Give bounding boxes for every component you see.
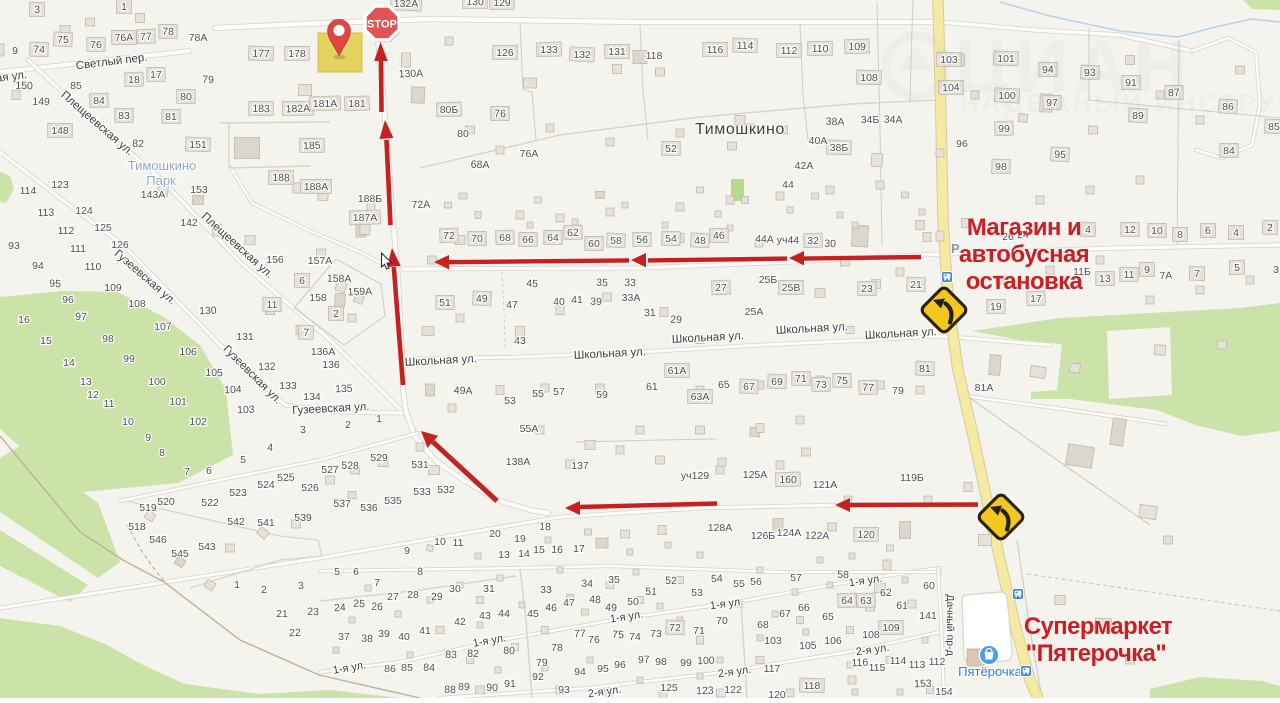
svg-text:76: 76 <box>90 39 102 51</box>
svg-text:3: 3 <box>298 580 304 592</box>
svg-text:21: 21 <box>276 608 288 620</box>
svg-text:524: 524 <box>257 479 275 491</box>
svg-text:80Б: 80Б <box>440 104 459 116</box>
svg-text:76А: 76А <box>114 32 133 45</box>
svg-text:102: 102 <box>189 416 207 429</box>
svg-text:77: 77 <box>140 31 152 43</box>
svg-text:527: 527 <box>321 464 339 476</box>
svg-text:2: 2 <box>261 584 267 596</box>
svg-text:535: 535 <box>384 495 402 507</box>
svg-text:533: 533 <box>413 486 431 498</box>
svg-text:71: 71 <box>693 625 705 637</box>
svg-text:111: 111 <box>70 243 86 255</box>
svg-text:53: 53 <box>691 587 703 599</box>
svg-text:67: 67 <box>743 381 755 393</box>
svg-text:35: 35 <box>608 574 620 586</box>
svg-text:72А: 72А <box>411 199 430 212</box>
svg-text:16: 16 <box>551 544 563 556</box>
svg-text:130А: 130А <box>398 68 423 81</box>
svg-text:131: 131 <box>236 331 254 343</box>
svg-text:108: 108 <box>862 629 880 641</box>
svg-text:115: 115 <box>869 662 886 674</box>
svg-text:85: 85 <box>70 80 82 92</box>
svg-text:119Б: 119Б <box>900 472 924 484</box>
svg-text:526: 526 <box>301 482 319 494</box>
svg-text:33А: 33А <box>622 292 641 304</box>
svg-text:8: 8 <box>1177 229 1183 241</box>
svg-text:92: 92 <box>532 671 544 683</box>
svg-text:124: 124 <box>75 205 93 217</box>
svg-text:42А: 42А <box>795 160 814 172</box>
svg-text:9: 9 <box>12 45 18 57</box>
svg-text:77: 77 <box>574 628 586 640</box>
svg-text:78А: 78А <box>189 32 208 44</box>
svg-text:110: 110 <box>812 43 829 56</box>
svg-text:Тимошкино: Тимошкино <box>128 158 197 173</box>
svg-text:129: 129 <box>493 0 511 9</box>
svg-text:181: 181 <box>348 98 366 110</box>
svg-text:131: 131 <box>608 46 626 58</box>
svg-text:20: 20 <box>489 528 501 540</box>
svg-text:5: 5 <box>334 566 340 578</box>
svg-text:85: 85 <box>1268 121 1280 133</box>
svg-text:STOP: STOP <box>367 19 397 31</box>
svg-text:40А: 40А <box>809 135 828 147</box>
svg-text:103: 103 <box>764 635 782 647</box>
svg-text:113: 113 <box>37 207 54 220</box>
svg-text:137: 137 <box>571 460 589 472</box>
svg-text:128А: 128А <box>708 522 733 534</box>
svg-text:2: 2 <box>345 419 351 431</box>
svg-text:51: 51 <box>439 297 451 309</box>
svg-text:54: 54 <box>711 573 723 585</box>
svg-text:55: 55 <box>532 388 544 400</box>
svg-text:151: 151 <box>189 139 207 151</box>
svg-text:42: 42 <box>454 616 466 628</box>
svg-text:5: 5 <box>1234 262 1240 274</box>
svg-text:97: 97 <box>75 311 87 323</box>
svg-text:71: 71 <box>795 373 807 385</box>
svg-text:11: 11 <box>267 299 278 311</box>
svg-text:116: 116 <box>851 657 868 670</box>
svg-text:76: 76 <box>588 634 600 646</box>
svg-text:61: 61 <box>646 381 658 393</box>
svg-text:23: 23 <box>307 606 319 618</box>
svg-text:85: 85 <box>401 662 413 674</box>
svg-text:154: 154 <box>935 686 953 698</box>
svg-text:78: 78 <box>551 642 563 654</box>
svg-text:74: 74 <box>33 44 45 56</box>
svg-text:1: 1 <box>376 413 382 425</box>
svg-text:135: 135 <box>335 383 353 396</box>
svg-text:141: 141 <box>919 610 937 622</box>
svg-text:57: 57 <box>790 572 802 584</box>
svg-text:108: 108 <box>860 72 878 84</box>
svg-text:12: 12 <box>87 389 99 401</box>
svg-text:14: 14 <box>518 548 530 560</box>
svg-text:6: 6 <box>353 566 359 578</box>
svg-text:63А: 63А <box>691 391 710 403</box>
svg-text:79: 79 <box>892 385 904 397</box>
svg-text:9: 9 <box>1144 264 1150 276</box>
svg-text:70: 70 <box>716 615 728 627</box>
svg-text:83: 83 <box>118 110 130 122</box>
svg-text:70: 70 <box>471 233 483 245</box>
svg-text:15: 15 <box>40 335 52 347</box>
svg-text:52: 52 <box>665 143 677 155</box>
svg-text:1: 1 <box>121 1 127 13</box>
svg-text:21: 21 <box>910 279 922 291</box>
svg-text:29: 29 <box>670 314 682 326</box>
svg-text:5: 5 <box>240 454 246 466</box>
svg-text:160: 160 <box>779 474 797 487</box>
svg-text:Пятёрочка: Пятёрочка <box>958 664 1022 679</box>
svg-text:4: 4 <box>1085 224 1091 236</box>
svg-text:95: 95 <box>597 663 609 675</box>
svg-text:73: 73 <box>815 379 827 391</box>
svg-text:64: 64 <box>841 595 853 607</box>
svg-text:10: 10 <box>1151 225 1163 237</box>
svg-text:17: 17 <box>573 543 585 555</box>
svg-text:19: 19 <box>990 301 1002 313</box>
svg-text:125: 125 <box>94 222 112 234</box>
svg-text:Супермаркет: Супермаркет <box>1024 613 1172 640</box>
svg-text:56: 56 <box>750 576 762 588</box>
svg-text:519: 519 <box>139 502 157 514</box>
svg-text:122А: 122А <box>805 530 830 543</box>
svg-text:25: 25 <box>353 598 365 610</box>
svg-text:123: 123 <box>696 685 714 698</box>
svg-text:38: 38 <box>361 633 373 645</box>
svg-text:53: 53 <box>504 395 516 407</box>
svg-text:34: 34 <box>581 578 593 590</box>
svg-text:44: 44 <box>782 179 794 191</box>
svg-text:23: 23 <box>861 283 873 295</box>
svg-text:158: 158 <box>309 292 327 304</box>
svg-text:66: 66 <box>798 602 810 614</box>
svg-text:68: 68 <box>757 619 769 631</box>
svg-text:522: 522 <box>201 497 219 509</box>
svg-text:19: 19 <box>514 533 526 545</box>
svg-text:525: 525 <box>277 472 295 485</box>
svg-text:142: 142 <box>180 217 198 229</box>
svg-text:34А: 34А <box>884 114 903 127</box>
svg-text:2: 2 <box>333 308 339 320</box>
svg-text:105: 105 <box>799 640 817 653</box>
svg-text:60: 60 <box>923 580 935 592</box>
svg-text:39: 39 <box>590 296 602 308</box>
svg-text:117: 117 <box>764 663 781 675</box>
svg-text:75: 75 <box>836 375 848 387</box>
svg-text:188: 188 <box>272 172 290 185</box>
svg-text:518: 518 <box>128 521 146 533</box>
svg-text:38А: 38А <box>826 116 845 129</box>
svg-text:17: 17 <box>150 69 162 81</box>
svg-text:86: 86 <box>384 663 396 675</box>
svg-text:156: 156 <box>266 254 284 266</box>
svg-text:62: 62 <box>567 227 579 239</box>
svg-text:106: 106 <box>179 346 197 359</box>
svg-text:Тимошкино: Тимошкино <box>695 121 785 138</box>
svg-text:49: 49 <box>476 293 488 305</box>
svg-text:6: 6 <box>206 465 212 477</box>
svg-text:65: 65 <box>718 379 730 391</box>
svg-text:95: 95 <box>1054 149 1066 161</box>
svg-text:9: 9 <box>145 432 151 444</box>
svg-text:78: 78 <box>162 26 174 38</box>
svg-text:18: 18 <box>128 74 140 86</box>
svg-text:11: 11 <box>104 398 115 410</box>
svg-text:114: 114 <box>890 655 907 667</box>
svg-text:539: 539 <box>294 512 312 524</box>
svg-text:98: 98 <box>655 656 667 668</box>
svg-text:177: 177 <box>252 48 270 61</box>
svg-text:153: 153 <box>914 678 932 691</box>
svg-text:93: 93 <box>558 684 570 696</box>
svg-text:543: 543 <box>198 541 216 553</box>
svg-text:51: 51 <box>645 586 657 598</box>
svg-text:46: 46 <box>545 602 557 614</box>
svg-text:187А: 187А <box>353 212 378 224</box>
svg-text:31: 31 <box>644 307 656 319</box>
svg-text:110: 110 <box>85 261 102 273</box>
svg-text:35: 35 <box>596 277 608 289</box>
svg-text:6: 6 <box>299 275 305 287</box>
svg-text:536: 536 <box>360 502 378 514</box>
svg-text:74: 74 <box>629 631 641 643</box>
svg-text:14: 14 <box>63 357 75 369</box>
svg-text:122: 122 <box>724 684 742 696</box>
svg-text:125: 125 <box>660 682 678 694</box>
svg-text:43: 43 <box>479 610 491 622</box>
svg-text:153: 153 <box>190 184 208 196</box>
svg-text:90: 90 <box>486 682 498 694</box>
svg-text:541: 541 <box>257 517 275 529</box>
svg-text:68А: 68А <box>471 159 490 172</box>
svg-text:94: 94 <box>32 260 44 272</box>
svg-text:12: 12 <box>1124 224 1136 236</box>
svg-text:8: 8 <box>159 447 165 459</box>
svg-text:3: 3 <box>34 4 40 16</box>
svg-text:123: 123 <box>51 179 69 191</box>
svg-text:25Б: 25Б <box>759 274 778 286</box>
svg-text:159А: 159А <box>347 286 372 299</box>
svg-text:60: 60 <box>588 238 600 250</box>
svg-text:49А: 49А <box>454 385 473 398</box>
svg-text:25А: 25А <box>745 306 764 318</box>
svg-text:НАДЕЖНЫЙ ИНСТРУМЕНТ: НАДЕЖНЫЙ ИНСТРУМЕНТ <box>960 88 1280 118</box>
svg-text:80: 80 <box>180 91 192 103</box>
svg-text:52: 52 <box>665 575 677 587</box>
svg-text:64: 64 <box>547 232 559 244</box>
svg-text:132: 132 <box>258 361 276 374</box>
svg-text:16: 16 <box>18 314 30 326</box>
svg-text:Парк: Парк <box>146 173 176 188</box>
svg-text:136: 136 <box>322 359 340 371</box>
svg-text:10: 10 <box>122 416 134 428</box>
svg-text:188А: 188А <box>304 181 329 193</box>
svg-text:41: 41 <box>571 294 583 306</box>
svg-text:84: 84 <box>1223 145 1235 157</box>
svg-text:99: 99 <box>123 353 135 365</box>
svg-text:183: 183 <box>252 103 270 116</box>
svg-text:15: 15 <box>533 544 545 556</box>
svg-text:72: 72 <box>669 622 681 634</box>
svg-text:40: 40 <box>553 296 565 308</box>
svg-text:47: 47 <box>506 299 518 311</box>
svg-text:106: 106 <box>824 635 842 647</box>
svg-text:48: 48 <box>694 235 706 247</box>
svg-text:8: 8 <box>417 566 423 578</box>
svg-text:81: 81 <box>165 111 177 123</box>
svg-text:101: 101 <box>169 396 187 409</box>
svg-text:108: 108 <box>128 298 146 310</box>
svg-text:100: 100 <box>148 376 166 388</box>
svg-text:45: 45 <box>526 278 538 290</box>
svg-text:88: 88 <box>444 684 456 696</box>
svg-text:130: 130 <box>466 0 484 8</box>
svg-text:26: 26 <box>371 601 383 613</box>
svg-text:84: 84 <box>423 662 435 674</box>
svg-text:182А: 182А <box>285 103 310 116</box>
svg-text:44А уч44: 44А уч44 <box>755 233 800 247</box>
svg-text:24: 24 <box>334 602 346 614</box>
svg-text:94: 94 <box>574 666 586 678</box>
svg-text:54: 54 <box>665 233 677 245</box>
svg-text:48: 48 <box>589 594 601 606</box>
svg-text:93: 93 <box>8 240 20 252</box>
svg-text:157А: 157А <box>308 255 333 267</box>
svg-text:55: 55 <box>733 578 745 590</box>
svg-text:7А: 7А <box>1159 270 1172 282</box>
svg-text:3: 3 <box>1273 264 1279 276</box>
svg-text:545: 545 <box>171 548 189 560</box>
svg-text:98: 98 <box>102 333 114 345</box>
svg-text:79: 79 <box>202 74 214 86</box>
svg-text:520: 520 <box>157 496 175 508</box>
svg-text:134: 134 <box>303 391 321 403</box>
svg-text:11: 11 <box>1124 269 1135 281</box>
svg-text:531: 531 <box>411 459 429 471</box>
svg-text:63: 63 <box>860 595 872 607</box>
svg-text:126: 126 <box>496 47 514 59</box>
svg-text:542: 542 <box>227 516 245 528</box>
svg-text:546: 546 <box>149 534 167 546</box>
svg-text:62: 62 <box>880 587 892 599</box>
svg-text:27: 27 <box>715 282 727 294</box>
svg-text:44: 44 <box>498 608 510 620</box>
svg-text:100: 100 <box>697 655 715 668</box>
svg-text:2: 2 <box>1267 222 1273 234</box>
svg-text:133: 133 <box>540 44 558 56</box>
svg-text:10: 10 <box>434 536 446 548</box>
svg-text:112: 112 <box>58 225 75 237</box>
svg-text:124А: 124А <box>777 527 802 539</box>
svg-text:112: 112 <box>929 656 946 668</box>
svg-text:4: 4 <box>1233 227 1239 239</box>
svg-text:96: 96 <box>614 659 626 671</box>
svg-text:58: 58 <box>610 235 622 247</box>
svg-text:Магазин и: Магазин и <box>967 214 1081 241</box>
svg-text:13: 13 <box>80 376 92 388</box>
svg-text:132А: 132А <box>394 0 419 10</box>
svg-text:80: 80 <box>503 645 515 657</box>
svg-text:34Б: 34Б <box>861 114 880 126</box>
svg-text:149: 149 <box>32 96 50 109</box>
svg-text:120: 120 <box>768 689 786 698</box>
svg-text:39: 39 <box>378 628 390 640</box>
svg-text:30: 30 <box>824 238 836 250</box>
svg-text:77: 77 <box>862 382 874 394</box>
svg-text:80: 80 <box>457 128 469 140</box>
svg-text:7: 7 <box>374 577 380 589</box>
svg-text:96: 96 <box>956 138 968 150</box>
svg-text:56: 56 <box>636 234 648 246</box>
svg-text:остановка: остановка <box>966 268 1084 295</box>
svg-text:109: 109 <box>104 282 122 294</box>
svg-text:"Пятерочка": "Пятерочка" <box>1026 640 1166 667</box>
svg-text:72: 72 <box>443 230 455 242</box>
svg-text:автобусная: автобусная <box>959 241 1089 268</box>
svg-text:107: 107 <box>154 321 172 334</box>
svg-text:31: 31 <box>483 583 495 595</box>
svg-text:112: 112 <box>781 45 798 57</box>
svg-text:136А: 136А <box>311 346 336 358</box>
svg-text:75: 75 <box>612 629 624 641</box>
svg-text:81: 81 <box>919 363 931 375</box>
svg-text:27: 27 <box>387 591 399 603</box>
svg-text:13: 13 <box>1099 273 1111 285</box>
svg-text:98: 98 <box>995 161 1007 173</box>
svg-text:105: 105 <box>205 367 223 380</box>
svg-text:89: 89 <box>458 681 470 693</box>
svg-text:103: 103 <box>237 404 255 417</box>
svg-text:69: 69 <box>771 376 783 388</box>
svg-text:11: 11 <box>453 537 464 549</box>
svg-text:81А: 81А <box>975 382 994 394</box>
svg-text:138А: 138А <box>506 456 531 468</box>
svg-text:1: 1 <box>234 579 240 591</box>
svg-text:523: 523 <box>229 487 247 499</box>
svg-text:114: 114 <box>20 185 37 197</box>
svg-text:61А: 61А <box>668 365 687 377</box>
svg-text:185: 185 <box>303 140 321 153</box>
svg-text:114: 114 <box>737 40 754 53</box>
svg-text:83: 83 <box>445 649 457 661</box>
svg-text:9: 9 <box>404 545 410 557</box>
svg-text:13: 13 <box>498 549 510 561</box>
svg-text:113: 113 <box>909 659 926 671</box>
svg-text:97: 97 <box>638 654 650 666</box>
svg-text:143А: 143А <box>141 189 166 201</box>
svg-text:532: 532 <box>437 484 455 496</box>
svg-text:148: 148 <box>51 125 69 137</box>
svg-text:126Б: 126Б <box>751 530 776 542</box>
svg-text:18: 18 <box>539 521 551 533</box>
svg-text:73: 73 <box>650 628 662 640</box>
svg-text:121А: 121А <box>813 479 838 491</box>
svg-text:104: 104 <box>224 384 242 397</box>
svg-text:7: 7 <box>184 466 190 478</box>
svg-text:67: 67 <box>779 608 791 620</box>
svg-text:76А: 76А <box>520 148 539 160</box>
svg-text:181А: 181А <box>313 98 338 110</box>
svg-text:55А: 55А <box>520 423 539 435</box>
svg-text:84: 84 <box>93 95 105 107</box>
svg-text:95: 95 <box>49 278 61 290</box>
svg-text:65: 65 <box>822 611 834 623</box>
svg-text:158А: 158А <box>327 273 352 286</box>
